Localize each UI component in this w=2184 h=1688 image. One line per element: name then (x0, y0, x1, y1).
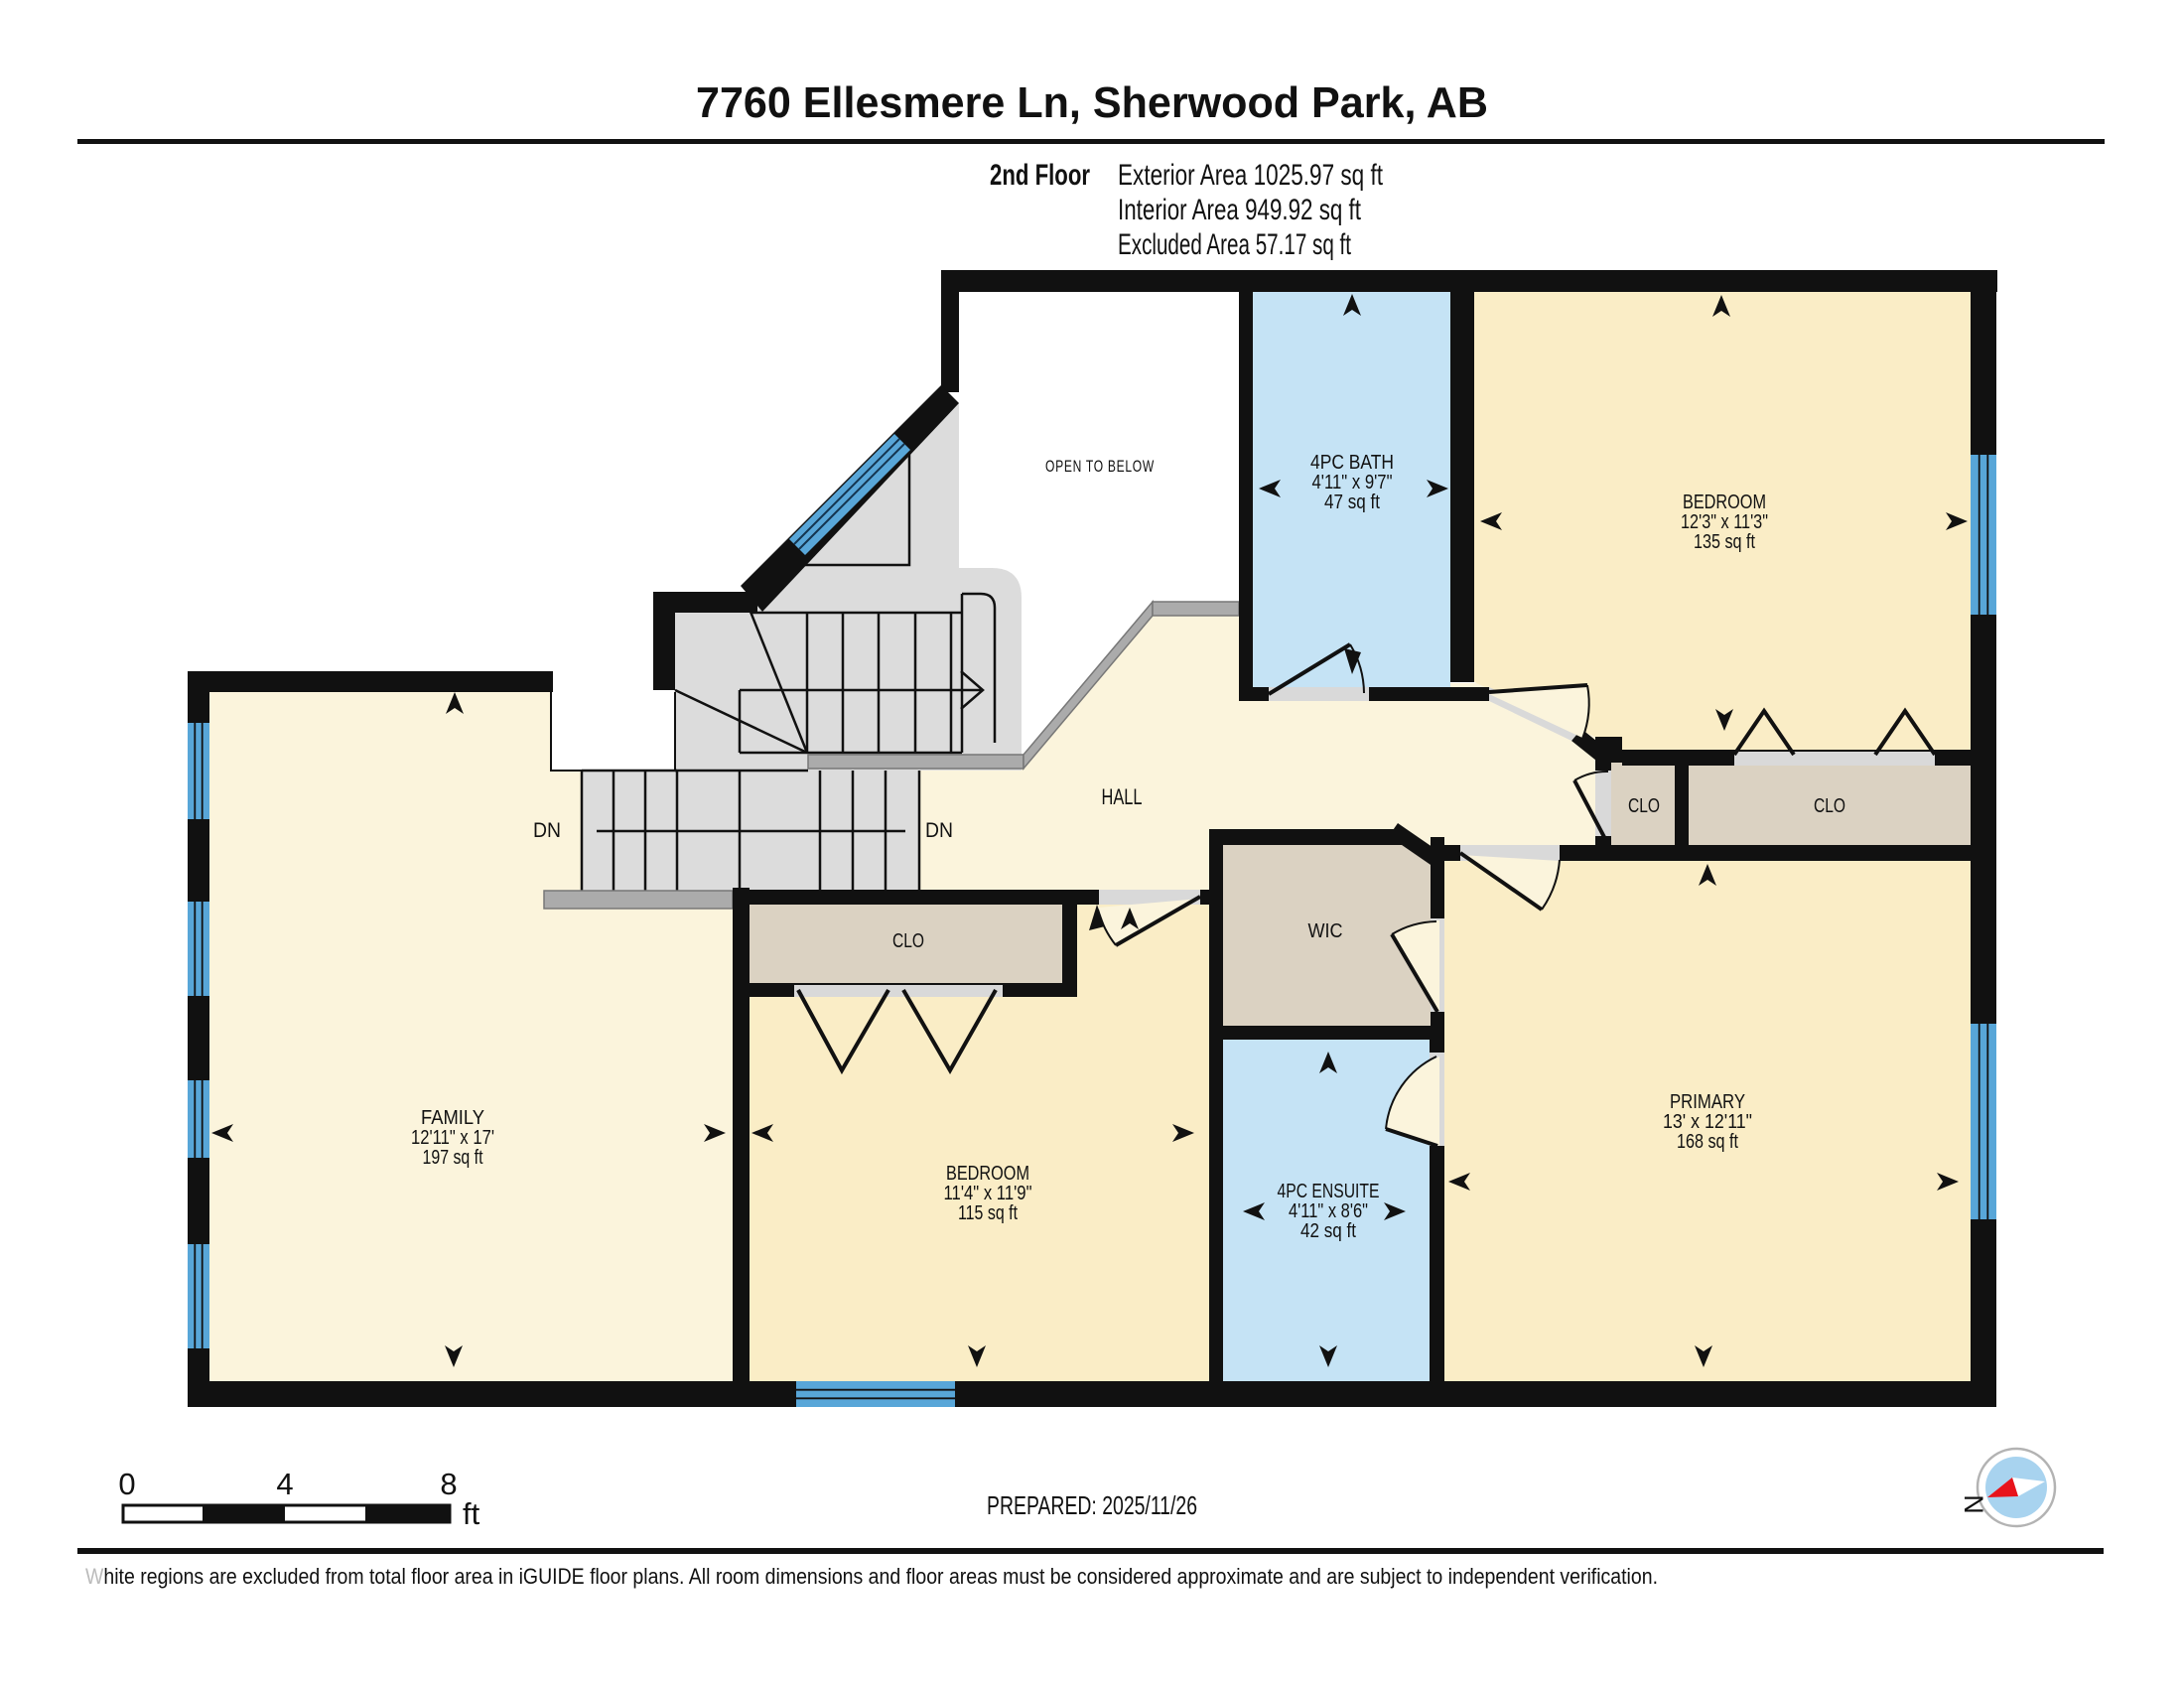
svg-text:13' x 12'11": 13' x 12'11" (1663, 1111, 1752, 1133)
svg-text:8: 8 (440, 1467, 457, 1501)
svg-text:4'11" x 8'6": 4'11" x 8'6" (1289, 1200, 1368, 1222)
svg-text:CLO: CLO (1628, 795, 1660, 817)
svg-text:HALL: HALL (1102, 784, 1143, 809)
svg-text:White regions are excluded fro: White regions are excluded from total fl… (85, 1564, 1658, 1589)
svg-text:12'3" x 11'3": 12'3" x 11'3" (1681, 511, 1768, 533)
svg-text:DN: DN (533, 819, 561, 842)
svg-text:N: N (1959, 1494, 1988, 1514)
svg-text:Excluded Area 57.17 sq ft: Excluded Area 57.17 sq ft (1118, 228, 1351, 261)
svg-text:WIC: WIC (1308, 920, 1343, 942)
svg-text:Interior Area 949.92 sq ft: Interior Area 949.92 sq ft (1118, 194, 1361, 226)
svg-text:PREPARED: 2025/11/26: PREPARED: 2025/11/26 (987, 1490, 1197, 1520)
svg-text:OPEN TO BELOW: OPEN TO BELOW (1045, 457, 1155, 476)
svg-text:168 sq ft: 168 sq ft (1677, 1131, 1738, 1153)
svg-text:BEDROOM: BEDROOM (946, 1163, 1029, 1185)
svg-text:4PC ENSUITE: 4PC ENSUITE (1278, 1181, 1380, 1202)
svg-text:ft: ft (463, 1496, 480, 1531)
svg-text:42 sq ft: 42 sq ft (1300, 1220, 1356, 1242)
svg-text:197 sq ft: 197 sq ft (423, 1147, 483, 1169)
svg-text:CLO: CLO (1814, 795, 1845, 817)
svg-text:2nd Floor: 2nd Floor (990, 159, 1090, 192)
svg-text:FAMILY: FAMILY (421, 1107, 484, 1129)
svg-text:Exterior Area 1025.97 sq ft: Exterior Area 1025.97 sq ft (1118, 159, 1383, 192)
svg-text:47 sq ft: 47 sq ft (1324, 492, 1380, 513)
svg-text:4PC BATH: 4PC BATH (1310, 452, 1394, 474)
svg-text:0: 0 (118, 1467, 135, 1501)
svg-text:PRIMARY: PRIMARY (1670, 1091, 1745, 1113)
svg-text:135 sq ft: 135 sq ft (1694, 531, 1755, 553)
svg-text:CLO: CLO (892, 930, 924, 952)
svg-text:115 sq ft: 115 sq ft (958, 1202, 1018, 1224)
svg-text:DN: DN (925, 819, 953, 842)
svg-text:12'11" x 17': 12'11" x 17' (411, 1127, 494, 1149)
svg-text:11'4" x 11'9": 11'4" x 11'9" (944, 1183, 1032, 1204)
svg-text:4'11" x 9'7": 4'11" x 9'7" (1312, 472, 1393, 493)
svg-text:7760 Ellesmere Ln, Sherwood Pa: 7760 Ellesmere Ln, Sherwood Park, AB (696, 78, 1488, 127)
svg-text:BEDROOM: BEDROOM (1683, 492, 1766, 513)
svg-text:4: 4 (276, 1467, 293, 1501)
